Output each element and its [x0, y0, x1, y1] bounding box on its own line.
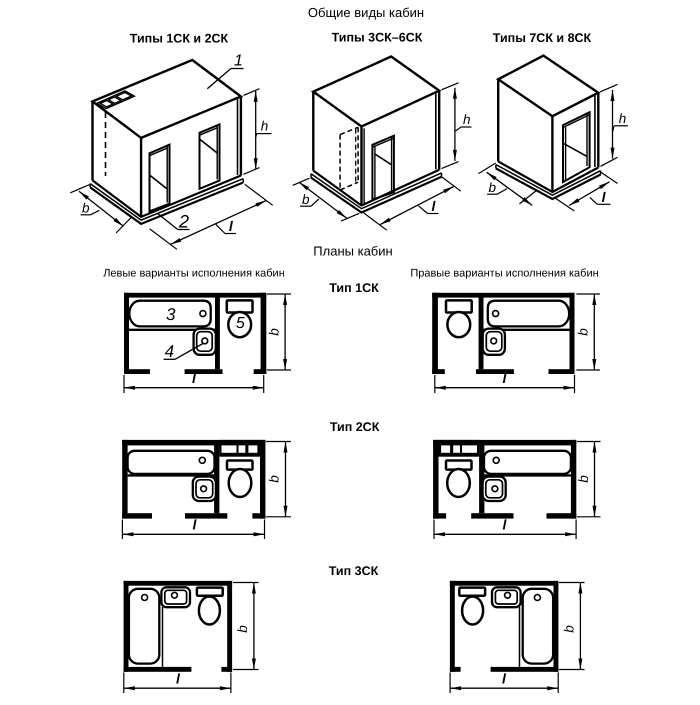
- svg-text:b: b: [267, 475, 282, 483]
- svg-text:h: h: [261, 119, 269, 134]
- svg-text:Планы кабин: Планы кабин: [313, 244, 392, 259]
- svg-text:b: b: [82, 201, 90, 216]
- svg-text:b: b: [576, 475, 591, 483]
- svg-text:Левые варианты исполнения каби: Левые варианты исполнения кабин: [103, 268, 285, 280]
- svg-text:Общие виды кабин: Общие виды кабин: [308, 5, 424, 20]
- svg-text:b: b: [576, 328, 591, 336]
- svg-text:2: 2: [178, 212, 189, 232]
- svg-text:h: h: [463, 112, 471, 127]
- svg-text:Правые варианты исполнения каб: Правые варианты исполнения кабин: [410, 268, 598, 280]
- svg-text:1: 1: [234, 53, 243, 70]
- svg-text:b: b: [235, 625, 250, 633]
- svg-text:Тип 2СК: Тип 2СК: [330, 420, 380, 434]
- svg-text:Тип 3СК: Тип 3СК: [329, 564, 379, 578]
- svg-text:Типы 3СК–6СК: Типы 3СК–6СК: [332, 31, 423, 45]
- svg-text:Тип 1СК: Тип 1СК: [329, 281, 379, 295]
- svg-text:h: h: [619, 111, 627, 126]
- svg-text:Типы 7СК и 8СК: Типы 7СК и 8СК: [493, 31, 592, 45]
- svg-text:Типы 1СК и 2СК: Типы 1СК и 2СК: [130, 32, 229, 46]
- svg-text:b: b: [489, 180, 497, 195]
- svg-text:b: b: [562, 625, 577, 633]
- svg-text:b: b: [267, 328, 282, 336]
- svg-text:5: 5: [236, 315, 245, 332]
- svg-text:3: 3: [166, 305, 176, 324]
- svg-text:b: b: [302, 192, 310, 207]
- svg-text:4: 4: [165, 342, 174, 361]
